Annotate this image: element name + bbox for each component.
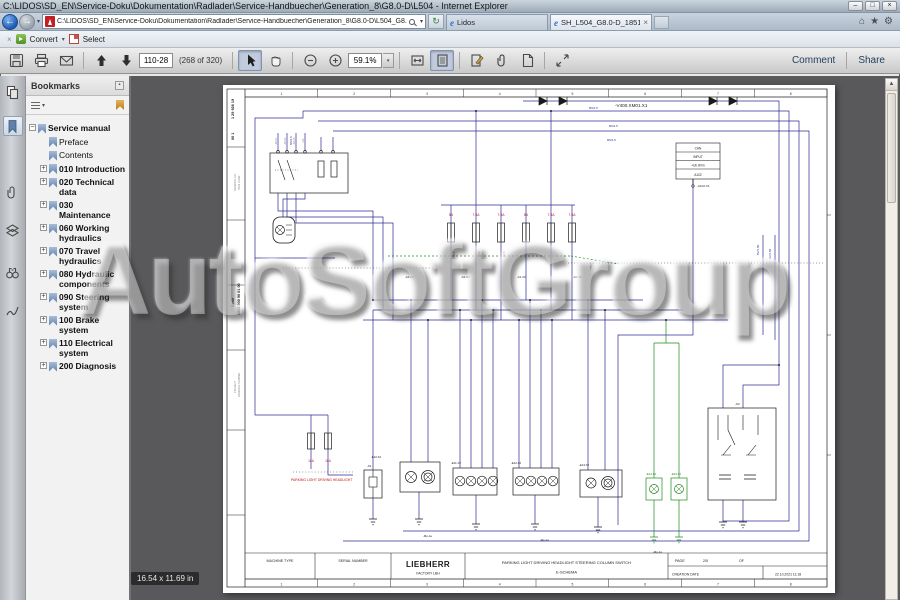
bookmark-icon [49,270,57,280]
bookmark-icon [49,137,57,147]
svg-text:PROJECT: PROJECT [233,380,237,393]
fit-page-button[interactable] [430,50,454,71]
svg-text:8: 8 [790,92,792,96]
tab-label[interactable]: SH_L504_G8.0-D_1851_202... [561,18,640,27]
document-properties-button[interactable] [515,50,539,71]
title-bar: C:\LIDOS\SD_EN\Service-Doku\Dokumentatio… [0,0,900,13]
svg-text:8: 8 [790,582,792,586]
svg-text:ITEM CODE: ITEM CODE [237,175,241,190]
ie-window: C:\LIDOS\SD_EN\Service-Doku\Dokumentatio… [0,0,900,600]
svg-text:M4.8: M4.8 [453,251,456,257]
svg-text:3: 3 [426,92,428,96]
svg-text:7: 7 [717,582,719,586]
sidebar-item-020-technical-data[interactable]: +020 Technical data [40,177,127,197]
svg-text:1: 1 [280,92,282,96]
ie-favicon: e [554,18,558,28]
svg-text:5A: 5A [524,213,529,217]
svg-text:-E11.X2: -E11.X2 [451,461,461,465]
svg-text:-S8.X2: -S8.X2 [284,137,287,145]
share-button[interactable]: Share [847,55,896,66]
creation-date-value: 22.10.2021 11:18 [775,573,801,577]
address-text[interactable]: C:\LIDOS\SD_EN\Service-Doku\Dokumentatio… [57,18,407,25]
creation-date-label: CREATION DATE [672,573,700,577]
svg-text:2: 2 [353,582,355,586]
machine-type-label: MACHINE TYPE [267,559,294,563]
command-bar: × Convert ▾ Select [0,31,900,48]
wiring-diagram: MACHINE TYPE SERIAL NUMBER LIEBHERR FACT… [223,85,835,593]
expander-icon[interactable]: + [40,362,47,369]
bookmarks-panel-icon[interactable] [3,116,23,136]
sidebar-item-110-electrical-system[interactable]: +110 Electrical system [40,338,127,358]
svg-text:8N/1.5: 8N/1.5 [609,124,618,128]
svg-text:4: 4 [499,92,501,96]
title-block [245,553,827,579]
new-bookmark-icon[interactable] [116,100,124,110]
page-count-label: (268 of 320) [179,56,222,65]
svg-text:Serie: Serie [231,298,235,307]
schematic-labels: -V400.XM01.X11 29 928 1900 1ITEM CODEDRA… [231,99,772,554]
layers-icon[interactable] [3,220,23,240]
convert-icon [16,34,26,44]
expander-icon[interactable]: + [40,201,47,208]
drawing-subtitle: E-SCHEMA [556,570,577,575]
ie-favicon: e [450,18,454,28]
bookmark-icon [49,224,57,234]
bookmark-label[interactable]: 110 Electrical system [59,338,127,358]
svg-text:10A: 10A [325,459,332,463]
sidebar-item-100-brake-system[interactable]: +100 Brake system [40,315,127,335]
home-icon[interactable]: ⌂ [859,16,865,27]
bookmark-icon [49,316,57,326]
svg-text:3: 3 [426,582,428,586]
zoom-dropdown-icon[interactable]: ▾ [383,53,394,68]
previous-page-button[interactable] [89,50,113,71]
forward-button[interactable]: → [19,14,35,30]
expander-icon[interactable]: + [40,224,47,231]
page-thumbnails-icon[interactable] [3,82,23,102]
svg-text:7.5A: 7.5A [569,213,577,217]
svg-text:-S8.X3: -S8.X3 [293,137,296,145]
search-icon[interactable] [409,19,415,25]
liebherr-logo: LIEBHERR [406,560,450,569]
select-tool-button[interactable] [238,50,262,71]
pdf-toolbar: 110-28 (268 of 320) 59.1% ▾ Comment Shar… [0,48,900,74]
sidebar-item-service-manual[interactable]: −Service manual [29,123,127,134]
settings-gear-icon[interactable]: ⚙ [884,16,893,27]
save-button[interactable] [4,50,28,71]
signature-icon[interactable] [3,300,23,320]
tab-document[interactable]: e SH_L504_G8.0-D_1851_202... × [550,14,652,30]
factory-label: FACTORY LBH [416,572,440,576]
sidebar-item-080-hydraulic-components[interactable]: +080 Hydraulic components [40,269,127,289]
close-button[interactable]: × [882,1,897,11]
bookmark-label[interactable]: 070 Travel hydraulics [59,246,127,266]
svg-text:1853 000 90 01 00: 1853 000 90 01 00 [237,283,241,315]
sidebar-item-060-working-hydraulics[interactable]: +060 Working hydraulics [40,223,127,243]
svg-text:9V/1.50: 9V/1.50 [768,248,772,259]
pdf-file-icon [45,16,55,27]
bookmark-label[interactable]: 080 Hydraulic components [59,269,127,289]
zoom-out-button[interactable] [298,50,322,71]
expander-icon[interactable] [40,151,47,158]
svg-text:A102: A102 [694,173,702,177]
svg-text:-E13.X2: -E13.X2 [579,463,590,467]
svg-text:-A1.X2: -A1.X2 [461,275,470,279]
annotate-button[interactable] [465,50,489,71]
svg-text:5: 5 [571,92,573,96]
bookmark-label[interactable]: 030 Maintenance [59,200,127,220]
vertical-scrollbar[interactable]: ▲ [885,78,898,600]
bookmark-icon [49,339,57,349]
favorites-star-icon[interactable]: ★ [870,16,879,27]
content-area: Bookmarks ▪ ▾ −Service manual Preface Co… [0,76,900,600]
tab-label[interactable]: Lidos [457,18,544,27]
convert-button[interactable]: Convert [30,35,58,44]
svg-text:-V400.XM01.X1: -V400.XM01.X1 [615,103,648,108]
green-lamps [646,478,687,500]
select-icon [69,34,79,44]
page-value: 2/5 [703,559,708,563]
svg-text:1 29 928 19: 1 29 928 19 [231,99,235,119]
svg-text:-A1.X2: -A1.X2 [405,275,414,279]
zoom-in-button[interactable] [323,50,347,71]
bookmarks-title: Bookmarks [31,81,80,91]
search-binoculars-icon[interactable] [3,262,23,282]
svg-text:-E15.X2: -E15.X2 [671,472,682,476]
fit-width-button[interactable] [405,50,429,71]
hand-tool-button[interactable] [263,50,287,71]
svg-text:6: 6 [644,582,646,586]
svg-text:CAN: CAN [695,147,702,151]
sidebar-item-preface[interactable]: Preface [40,137,127,148]
svg-text:8N/1.5: 8N/1.5 [589,106,598,110]
svg-text:8N/1.5: 8N/1.5 [607,138,616,142]
window-title: C:\LIDOS\SD_EN\Service-Doku\Dokumentatio… [3,1,846,11]
expander-icon[interactable]: + [40,293,47,300]
bookmark-icon [49,151,57,161]
back-button[interactable]: ← [2,14,18,30]
svg-text:1: 1 [280,582,282,586]
title-block-text: MACHINE TYPE SERIAL NUMBER LIEBHERR FACT… [267,559,802,577]
expander-icon[interactable] [40,138,47,145]
svg-text:-Mp-1a: -Mp-1a [540,538,549,542]
document-view[interactable]: MACHINE TYPE SERIAL NUMBER LIEBHERR FACT… [131,76,900,600]
bookmarks-tree: −Service manual Preface Contents +010 In… [26,115,129,600]
svg-text:-Mp-1a: -Mp-1a [653,550,662,554]
restore-button[interactable]: □ [865,1,880,11]
fullscreen-button[interactable] [550,50,574,71]
svg-text:M4.8: M4.8 [478,251,481,257]
svg-text:2: 2 [353,92,355,96]
bookmark-icon [38,124,46,134]
svg-text:DRAWING NUMBER: DRAWING NUMBER [237,372,241,397]
drawing-title: PARKING LIGHT DRIVING HEADLIGHT STEERING… [502,560,631,565]
page-size-tooltip: 16.54 x 11.69 in [131,572,199,585]
svg-text:8V/1.50: 8V/1.50 [756,244,760,255]
svg-text:00 1: 00 1 [231,133,235,140]
print-button[interactable] [29,50,53,71]
svg-text:-E14.X2: -E14.X2 [646,472,657,476]
bookmark-icon [49,362,57,372]
svg-text:10A: 10A [308,459,315,463]
svg-text:-S1: -S1 [367,464,372,468]
bookmark-label[interactable]: 060 Working hydraulics [59,223,127,243]
scroll-up-icon[interactable]: ▲ [886,79,897,91]
expander-icon[interactable]: + [40,316,47,323]
svg-text:-E12.X2: -E12.X2 [511,461,522,465]
minimize-button[interactable]: – [848,1,863,11]
zoom-level-input[interactable]: 59.1% [348,53,382,68]
expander-icon[interactable]: + [40,165,47,172]
expander-icon[interactable]: + [40,247,47,254]
address-dropdown-icon[interactable]: ▾ [420,18,423,25]
bookmark-label[interactable]: 090 Steering system [59,292,127,312]
svg-text:6: 6 [644,92,646,96]
bookmarks-panel: Bookmarks ▪ ▾ −Service manual Preface Co… [26,76,131,600]
address-bar[interactable]: C:\LIDOS\SD_EN\Service-Doku\Dokumentatio… [42,14,426,29]
convert-dropdown-icon[interactable]: ▾ [62,36,65,43]
history-dropdown-icon[interactable]: ▾ [37,18,40,25]
expander-icon[interactable]: + [40,270,47,277]
bookmark-icon [49,164,57,174]
next-page-button[interactable] [114,50,138,71]
expander-icon[interactable]: − [29,124,36,131]
svg-text:7.5A: 7.5A [473,213,481,217]
schematic-page[interactable]: MACHINE TYPE SERIAL NUMBER LIEBHERR FACT… [223,85,835,593]
bookmark-label[interactable]: Contents [59,150,127,160]
navigation-bar: ← → ▾ C:\LIDOS\SD_EN\Service-Doku\Dokume… [0,13,900,31]
svg-text:DRAWING NO.: DRAWING NO. [233,173,237,191]
svg-text:+Ub 8Vm: +Ub 8Vm [691,164,705,168]
svg-text:7.5A: 7.5A [498,213,506,217]
tab-close-icon[interactable]: × [643,18,648,27]
svg-text:-S8.X1: -S8.X1 [275,137,278,145]
junction-dots [372,110,780,366]
svg-text:+S3: +S3 [302,138,305,143]
bookmark-icon [49,293,57,303]
sidebar-item-030-maintenance[interactable]: +030 Maintenance [40,200,127,220]
svg-text:M4.8: M4.8 [503,251,506,257]
svg-text:INPUT: INPUT [693,155,703,159]
options-menu-icon[interactable] [31,102,40,109]
select-button[interactable]: Select [83,35,105,44]
sidebar-item-contents[interactable]: Contents [40,150,127,161]
svg-text:7.5A: 7.5A [548,213,556,217]
expander-icon[interactable]: + [40,178,47,185]
svg-text:5: 5 [571,582,573,586]
of-label: OF [739,559,745,563]
serial-number-label: SERIAL NUMBER [338,559,368,563]
new-tab-button[interactable] [654,16,669,29]
svg-text:-A102.X1: -A102.X1 [697,184,710,188]
sidebar-item-090-steering-system[interactable]: +090 Steering system [40,292,127,312]
collapse-panel-button[interactable]: ▪ [115,81,124,90]
bookmark-label[interactable]: Preface [59,137,127,147]
attachments-paperclip-icon[interactable] [3,182,23,202]
svg-text:PARKING LIGHT DRIVING HEADLIGH: PARKING LIGHT DRIVING HEADLIGHT [291,478,352,482]
sidebar-item-070-travel-hydraulics[interactable]: +070 Travel hydraulics [40,246,127,266]
email-button[interactable] [54,50,78,71]
page-label: PAGE [675,559,685,563]
scrollbar-thumb[interactable] [887,93,896,203]
bookmark-label[interactable]: 100 Brake system [59,315,127,335]
bookmarks-toolbar: ▾ [26,96,129,115]
close-toolbar-icon[interactable]: × [7,35,12,44]
svg-text:-A1.X2: -A1.X2 [573,275,582,279]
sidebar-item-200-diagnosis[interactable]: +200 Diagnosis [40,361,127,372]
tab-lidos[interactable]: e Lidos [446,14,548,30]
svg-text:-Mp-1a: -Mp-1a [423,534,432,538]
bookmark-label[interactable]: Service manual [48,123,127,133]
bookmark-icon [49,247,57,257]
comment-button[interactable]: Comment [781,55,846,66]
svg-text:-E10.X2: -E10.X2 [371,455,382,459]
sidebar-item-010-introduction[interactable]: +010 Introduction [40,164,127,175]
bookmark-icon [49,201,57,211]
svg-text:-A1.X2: -A1.X2 [517,275,526,279]
column-numbers: 1122334455667788 [280,89,827,587]
bookmark-label[interactable]: 010 Introduction [59,164,127,174]
refresh-button[interactable]: ↻ [428,14,444,29]
expander-icon[interactable]: + [40,339,47,346]
svg-text:5A: 5A [449,213,454,217]
bookmarks-header: Bookmarks ▪ [26,76,129,96]
bookmark-label[interactable]: 200 Diagnosis [59,361,127,371]
svg-text:7: 7 [717,92,719,96]
svg-text:-K2: -K2 [735,402,740,406]
bookmark-label[interactable]: 020 Technical data [59,177,127,197]
attachment-clip-button[interactable] [490,50,514,71]
bookmark-icon [49,178,57,188]
page-number-input[interactable]: 110-28 [139,53,173,68]
svg-text:4: 4 [499,582,501,586]
options-caret-icon[interactable]: ▾ [42,102,45,109]
navigation-pane-strip [0,76,26,600]
